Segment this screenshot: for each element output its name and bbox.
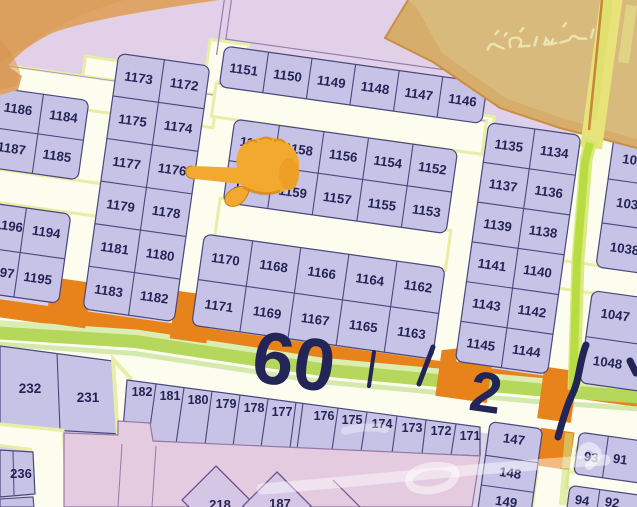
svg-text:182: 182 bbox=[132, 385, 153, 399]
svg-text:231: 231 bbox=[77, 390, 100, 405]
svg-text:91: 91 bbox=[612, 451, 628, 468]
svg-text:1196: 1196 bbox=[0, 216, 24, 235]
svg-text:173: 173 bbox=[402, 421, 423, 435]
svg-text:94: 94 bbox=[574, 492, 591, 507]
svg-text:1197: 1197 bbox=[0, 263, 15, 282]
svg-text:232: 232 bbox=[19, 381, 42, 396]
svg-text:177: 177 bbox=[272, 405, 293, 419]
svg-text:218: 218 bbox=[209, 497, 231, 507]
svg-text:147: 147 bbox=[502, 430, 526, 448]
svg-text:181: 181 bbox=[160, 389, 181, 403]
svg-text:60: 60 bbox=[247, 315, 340, 409]
svg-text:236: 236 bbox=[10, 466, 32, 481]
svg-text:179: 179 bbox=[216, 397, 237, 411]
svg-text:149: 149 bbox=[494, 493, 518, 507]
svg-text:176: 176 bbox=[314, 409, 335, 423]
svg-text:180: 180 bbox=[188, 393, 209, 407]
svg-text:92: 92 bbox=[604, 494, 620, 507]
svg-text:171: 171 bbox=[460, 429, 481, 443]
svg-text:178: 178 bbox=[244, 401, 265, 415]
svg-text:172: 172 bbox=[431, 424, 452, 438]
svg-text:187: 187 bbox=[269, 496, 291, 507]
